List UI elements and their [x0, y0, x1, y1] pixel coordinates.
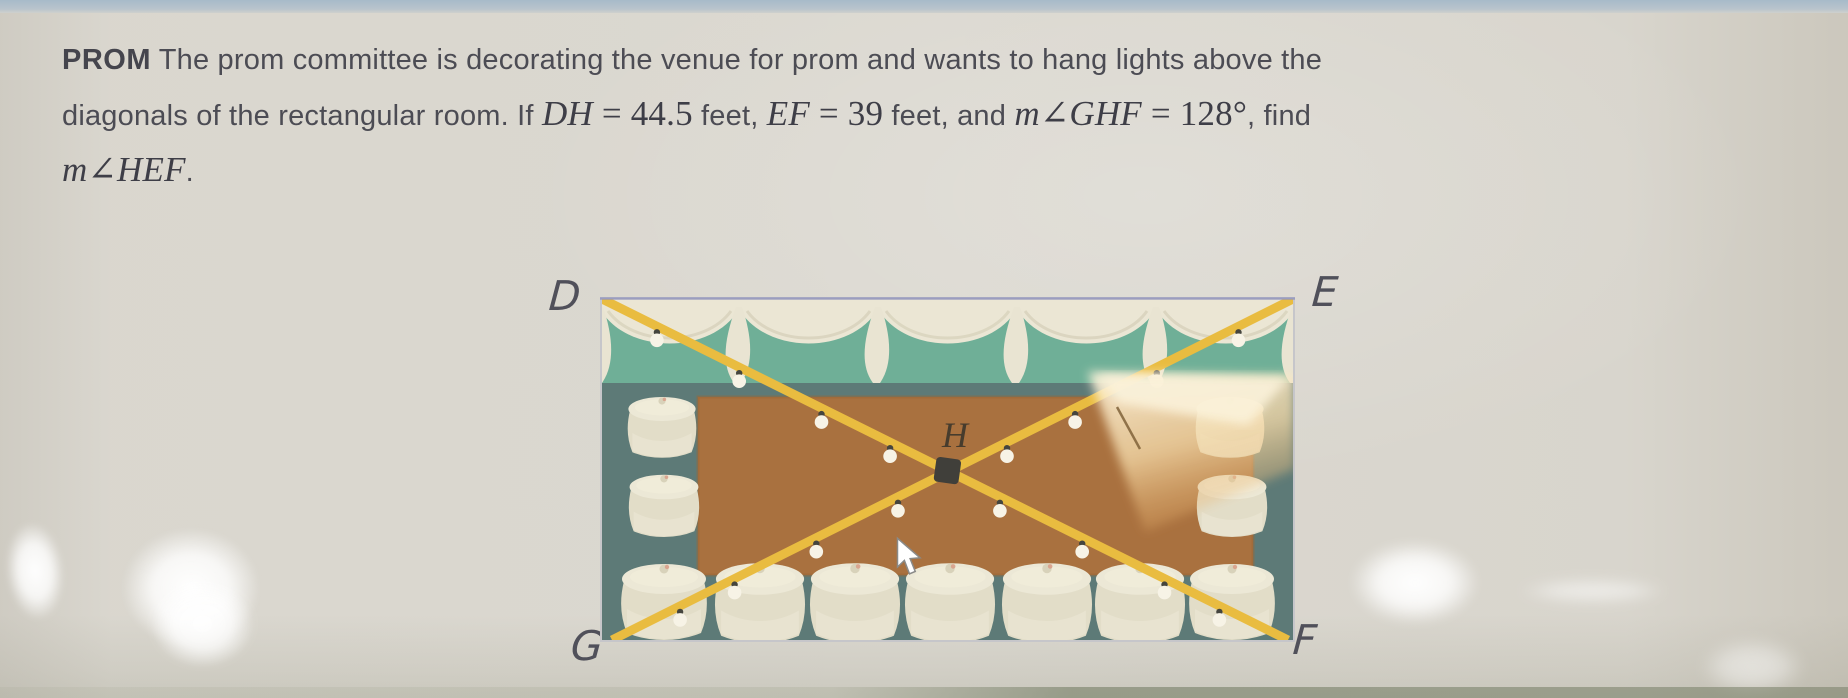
math-m2: m [62, 150, 87, 189]
problem-line-1: PROM The prom committee is decorating th… [62, 34, 1322, 87]
table [629, 475, 699, 537]
problem-line-3: m∠HEF. [62, 143, 1322, 199]
problem-text-1: The prom committee is decorating the ven… [151, 44, 1322, 76]
flash-glare [122, 528, 260, 648]
math-DH: DH [542, 94, 593, 133]
problem-text-2d: , find [1247, 100, 1311, 132]
problem-period: . [186, 156, 194, 188]
table [1095, 563, 1185, 642]
center-label-H: H [941, 415, 970, 455]
vertex-label-D: D [547, 272, 582, 320]
flash-glare [1518, 578, 1668, 604]
table [810, 563, 900, 642]
vertex-label-E: E [1310, 268, 1339, 316]
math-EF-value: = 39 [810, 94, 883, 133]
diagonal-intersection-knot [933, 456, 961, 484]
problem-line-2: diagonals of the rectangular room. If DH… [62, 87, 1322, 143]
flash-glare [1, 519, 69, 623]
table [1002, 563, 1092, 642]
angle-symbol-2: ∠ [87, 150, 117, 189]
problem-text-2b: feet, [693, 100, 767, 132]
ballroom-illustration: H [600, 297, 1295, 642]
curtain-swags [600, 297, 1295, 344]
cursor-arrow-icon [895, 536, 925, 578]
math-EF: EF [767, 94, 810, 133]
table [628, 397, 697, 458]
bottom-edge-strip [0, 687, 1848, 698]
flash-glare [1350, 540, 1480, 625]
math-GHF: GHF [1069, 94, 1142, 133]
angle-symbol-1: ∠ [1040, 94, 1070, 133]
problem-statement: PROM The prom committee is decorating th… [62, 34, 1322, 199]
problem-text-2c: feet, and [883, 100, 1014, 132]
math-m1: m [1014, 94, 1039, 133]
math-GHF-value: = 128° [1142, 94, 1247, 133]
vertex-label-F: F [1291, 616, 1318, 664]
top-edge-strip [0, 0, 1848, 13]
flash-glare [150, 580, 255, 668]
math-DH-value: = 44.5 [593, 94, 693, 133]
math-HEF: HEF [117, 150, 186, 189]
problem-label: PROM [62, 44, 151, 76]
table [715, 563, 805, 642]
problem-text-2a: diagonals of the rectangular room. If [62, 100, 542, 132]
